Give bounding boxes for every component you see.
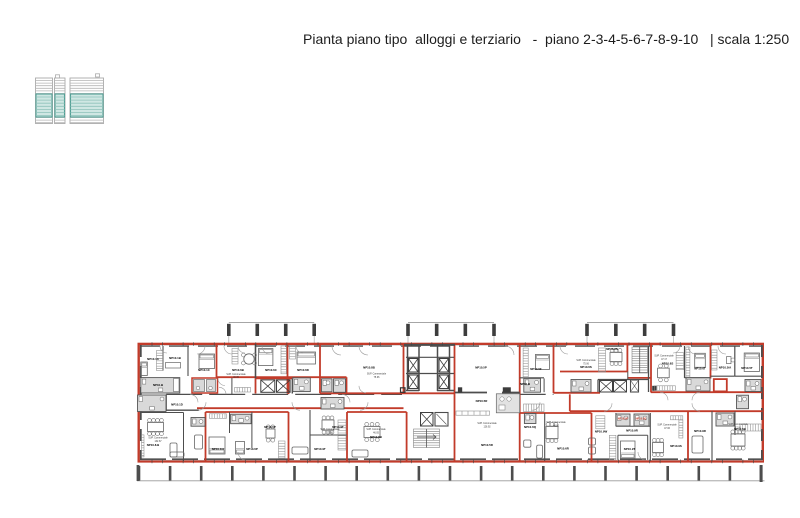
svg-text:132.67: 132.67 (154, 441, 162, 443)
svg-text:NP10.9T: NP10.9T (624, 447, 636, 451)
svg-text:SUP. Commerciale: SUP. Commerciale (477, 422, 497, 425)
svg-text:SUP. Commerciale: SUP. Commerciale (226, 373, 246, 376)
svg-text:75.06: 75.06 (327, 433, 333, 435)
svg-text:NP10.6S: NP10.6S (580, 365, 592, 369)
svg-text:NP10.9R: NP10.9R (626, 429, 639, 433)
svg-text:NP10.6S: NP10.6S (662, 362, 674, 366)
svg-text:SUP. Commerciale: SUP. Commerciale (148, 437, 168, 440)
svg-text:NP10.5P: NP10.5P (475, 366, 487, 370)
svg-text:75.06: 75.06 (583, 364, 589, 366)
svg-text:46.05: 46.05 (373, 433, 379, 435)
svg-text:NP10.6B: NP10.6B (232, 368, 244, 372)
svg-text:NP10.1A: NP10.1A (147, 357, 160, 361)
svg-text:NP10.9R: NP10.9R (694, 429, 707, 433)
svg-text:NP10.5T: NP10.5T (741, 366, 753, 370)
svg-text:NP10.6B: NP10.6B (370, 435, 382, 439)
svg-text:SUP. Commerciale: SUP. Commerciale (728, 423, 748, 426)
svg-text:NP10.6P: NP10.6P (264, 425, 276, 429)
svg-text:NP10.5R: NP10.5R (476, 399, 489, 403)
svg-text:NP10.5F: NP10.5F (530, 367, 542, 371)
svg-text:SUP. Commerciale: SUP. Commerciale (367, 373, 387, 376)
svg-text:NP10.6P: NP10.6P (246, 447, 258, 451)
svg-text:NP10.1B: NP10.1B (169, 356, 181, 360)
svg-text:NP10.9P: NP10.9P (618, 417, 629, 421)
svg-text:SUP. Commerciale: SUP. Commerciale (654, 355, 674, 358)
svg-text:NP10.9Q: NP10.9Q (636, 417, 647, 421)
svg-text:NP10.8B: NP10.8B (363, 366, 375, 370)
svg-text:NP10.9S: NP10.9S (670, 444, 682, 448)
svg-text:46.05: 46.05 (233, 377, 239, 379)
svg-text:SUP. Commerciale: SUP. Commerciale (320, 428, 340, 431)
svg-text:46.06: 46.06 (553, 426, 559, 428)
svg-text:NP10.8.B: NP10.8.B (147, 443, 160, 447)
svg-text:NP10.9W: NP10.9W (595, 430, 608, 434)
svg-text:NP10.5/A: NP10.5/A (719, 365, 732, 369)
svg-text:NP10.5R: NP10.5R (481, 443, 494, 447)
svg-text:75.06: 75.06 (374, 377, 380, 379)
svg-text:SUP. Commerciale: SUP. Commerciale (366, 428, 386, 431)
svg-text:47.17: 47.17 (661, 359, 667, 361)
svg-text:NP10.1D: NP10.1D (171, 403, 183, 407)
svg-text:17.06: 17.06 (735, 428, 741, 430)
svg-text:NP10.B: NP10.B (520, 382, 530, 386)
svg-text:NP10.9T: NP10.9T (314, 447, 326, 451)
svg-text:47.06: 47.06 (664, 428, 670, 430)
svg-text:NP10.6T: NP10.6T (694, 367, 706, 371)
svg-text:NP10.1/A: NP10.1/A (212, 447, 225, 451)
svg-text:NP10.6R: NP10.6R (557, 447, 570, 451)
svg-text:NP10.6D: NP10.6D (297, 368, 309, 372)
svg-text:NP10.6S: NP10.6S (606, 347, 618, 351)
svg-text:SUP. Commerciale: SUP. Commerciale (546, 421, 566, 424)
svg-text:NP10.6C: NP10.6C (265, 368, 278, 372)
svg-text:SUP. Commerciale: SUP. Commerciale (657, 424, 677, 427)
svg-text:NP10.6Q: NP10.6Q (524, 425, 537, 429)
svg-text:NP10.B: NP10.B (153, 383, 163, 387)
svg-text:SUP. Commerciale: SUP. Commerciale (576, 359, 596, 362)
svg-text:126.92: 126.92 (483, 427, 491, 429)
svg-text:NP10.1C: NP10.1C (198, 368, 211, 372)
